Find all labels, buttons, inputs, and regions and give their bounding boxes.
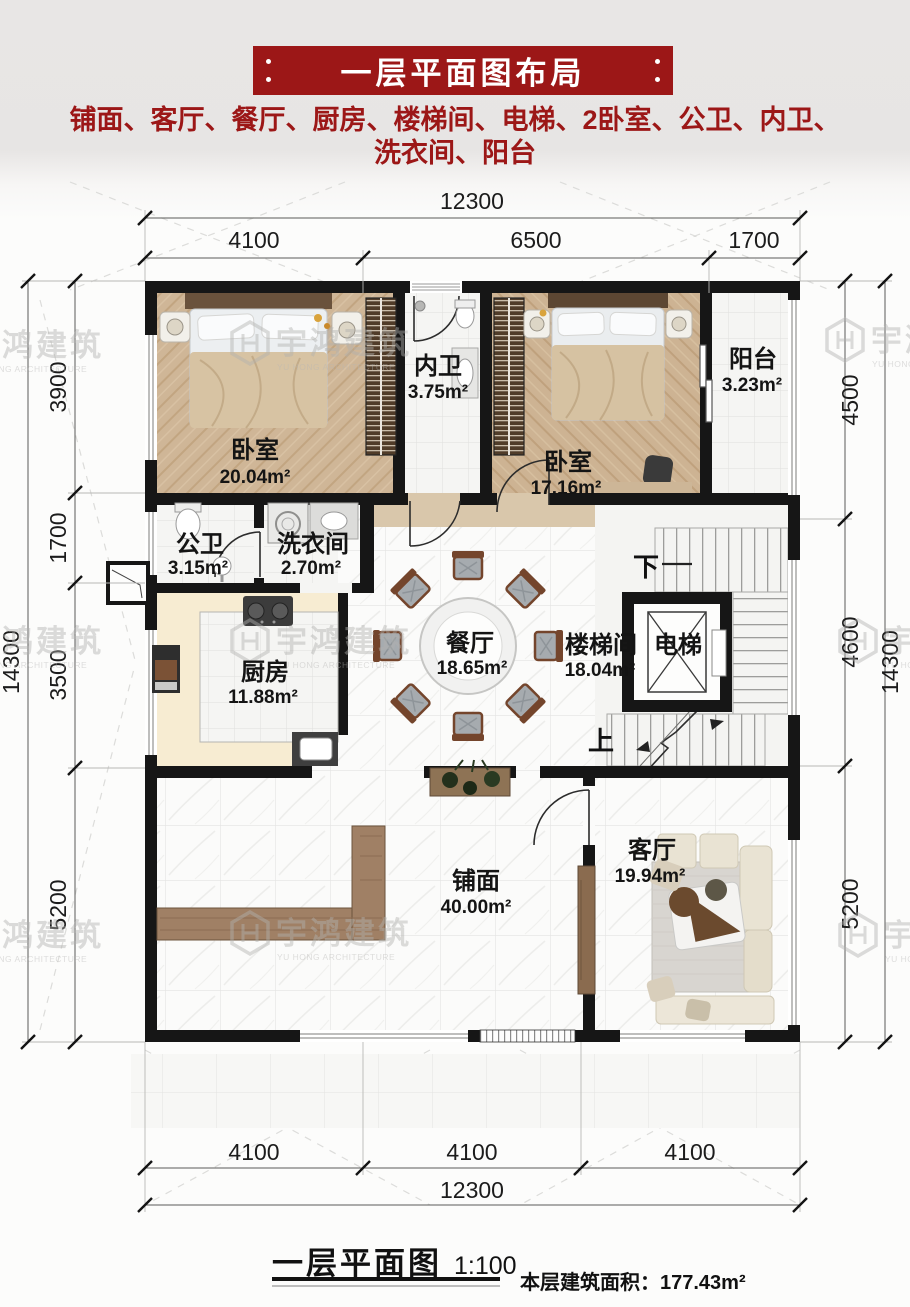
room-name-shop: 铺面 xyxy=(452,868,500,895)
room-name-stairwell: 楼梯间 xyxy=(565,631,637,659)
watermark-cn: 宇鸿建筑 xyxy=(276,326,412,361)
dim-bottom-seg: 4100 xyxy=(446,1139,497,1165)
dim-right-seg: 5200 xyxy=(837,878,863,929)
room-area-balcony: 3.23m² xyxy=(722,375,782,396)
dim-top-seg: 4100 xyxy=(228,227,279,253)
room-area-living: 19.94m² xyxy=(615,866,686,887)
watermark-cn: 宇鸿建筑 xyxy=(0,328,104,363)
room-name-inner-bath: 内卫 xyxy=(414,353,462,380)
room-name-balcony: 阳台 xyxy=(729,345,777,373)
watermark-cn: 宇鸿建筑 xyxy=(884,624,910,659)
sidewalk xyxy=(131,1054,800,1128)
room-area-laundry: 2.70m² xyxy=(281,558,341,579)
dim-right-seg: 4500 xyxy=(837,374,863,425)
room-name-public-bath: 公卫 xyxy=(176,531,224,558)
watermark-en: YU HONG ARCHITECTURE xyxy=(0,364,87,374)
dim-bottom-seg: 4100 xyxy=(664,1139,715,1165)
room-name-elevator: 电梯 xyxy=(654,631,702,659)
dim-top-seg: 6500 xyxy=(510,227,561,253)
pillow xyxy=(684,998,711,1022)
room-area-public-bath: 3.15m² xyxy=(168,558,228,579)
watermark-cn: 宇鸿建筑 xyxy=(276,624,412,659)
total-area-label: 本层建筑面积： xyxy=(520,1272,660,1294)
caption-underline-thick xyxy=(272,1277,500,1281)
watermark-en: YU HONG ARCHITECTURE xyxy=(277,362,395,372)
caption-underline-thin xyxy=(272,1285,500,1287)
balcony-slider xyxy=(700,345,706,387)
room-name-bedroom2: 卧室 xyxy=(544,448,592,476)
total-area-value: 177.43m² xyxy=(660,1272,746,1294)
balcony-floor xyxy=(712,293,788,505)
dim-top-seg: 1700 xyxy=(728,227,779,253)
stair-down-label: 下 xyxy=(633,552,659,582)
room-name-dining: 餐厅 xyxy=(446,630,494,657)
watermark-en: YU HONG ARCHITECTURE xyxy=(0,954,87,964)
watermark-en: YU HONG ARCHITECTURE xyxy=(0,660,87,670)
room-name-kitchen: 厨房 xyxy=(241,658,289,686)
desk xyxy=(600,482,692,493)
dim-bottom-seg: 4100 xyxy=(228,1139,279,1165)
room-area-bedroom1: 20.04m² xyxy=(220,467,291,488)
dim-bottom-total: 12300 xyxy=(440,1177,504,1203)
total-area-note: 本层建筑面积：177.43m² xyxy=(520,1266,746,1295)
floor-plan: 12300 4100 6500 1700 4100 4100 4100 1230… xyxy=(0,0,910,1307)
watermark-en: YU HONG ARCHITECTURE xyxy=(885,660,910,670)
watermark-en: YU HONG ARCHITECTURE xyxy=(277,952,395,962)
room-area-kitchen: 11.88m² xyxy=(228,687,298,708)
room-name-laundry: 洗衣间 xyxy=(277,530,349,558)
room-area-bedroom2: 17.16m² xyxy=(531,478,602,499)
page: 一层平面图布局 铺面、客厅、餐厅、厨房、楼梯间、电梯、2卧室、公卫、内卫、 洗衣… xyxy=(0,0,910,1307)
watermark-en: YU HONG ARCHITECTURE xyxy=(885,954,910,964)
dim-left-seg: 1700 xyxy=(45,512,71,563)
shop-entry-shutter xyxy=(480,1030,575,1042)
room-area-inner-bath: 3.75m² xyxy=(408,382,468,403)
room-area-dining: 18.65m² xyxy=(437,658,508,679)
room-name-bedroom1: 卧室 xyxy=(231,436,279,464)
watermark-cn: 宇鸿建筑 xyxy=(276,916,412,951)
watermark-en: YU HONG ARCHITECTURE xyxy=(277,660,395,670)
watermark-cn: 宇鸿建筑 xyxy=(0,918,104,953)
watermark-cn: 宇鸿建筑 xyxy=(871,323,910,358)
watermark-cn: 宇鸿建筑 xyxy=(884,918,910,953)
watermark-en: YU HONG ARCHITECTURE xyxy=(872,359,910,369)
room-name-living: 客厅 xyxy=(628,836,676,864)
stair-up-label: 上 xyxy=(588,726,614,756)
hallway-strip xyxy=(374,505,595,527)
room-area-stairwell: 18.04m² xyxy=(565,660,636,681)
room-area-shop: 40.00m² xyxy=(441,897,512,918)
watermark-cn: 宇鸿建筑 xyxy=(0,624,104,659)
dim-top-total: 12300 xyxy=(440,188,504,214)
